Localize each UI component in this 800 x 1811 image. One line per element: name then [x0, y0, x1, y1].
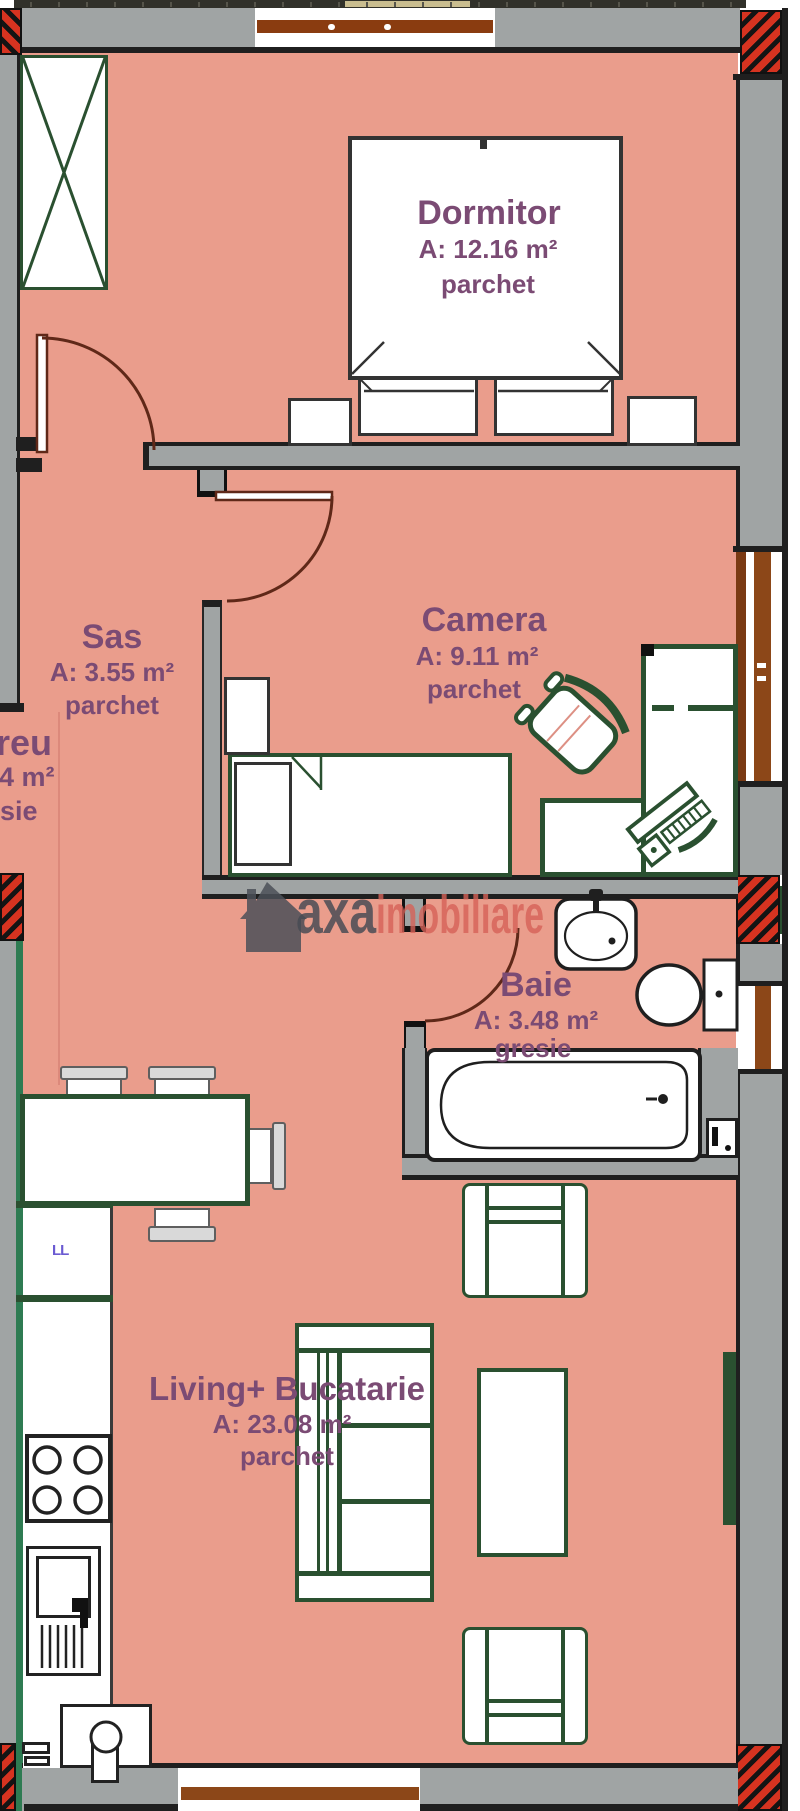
svg-text:axa: axa [296, 878, 376, 947]
svg-text:imobiliare: imobiliare [376, 885, 544, 945]
